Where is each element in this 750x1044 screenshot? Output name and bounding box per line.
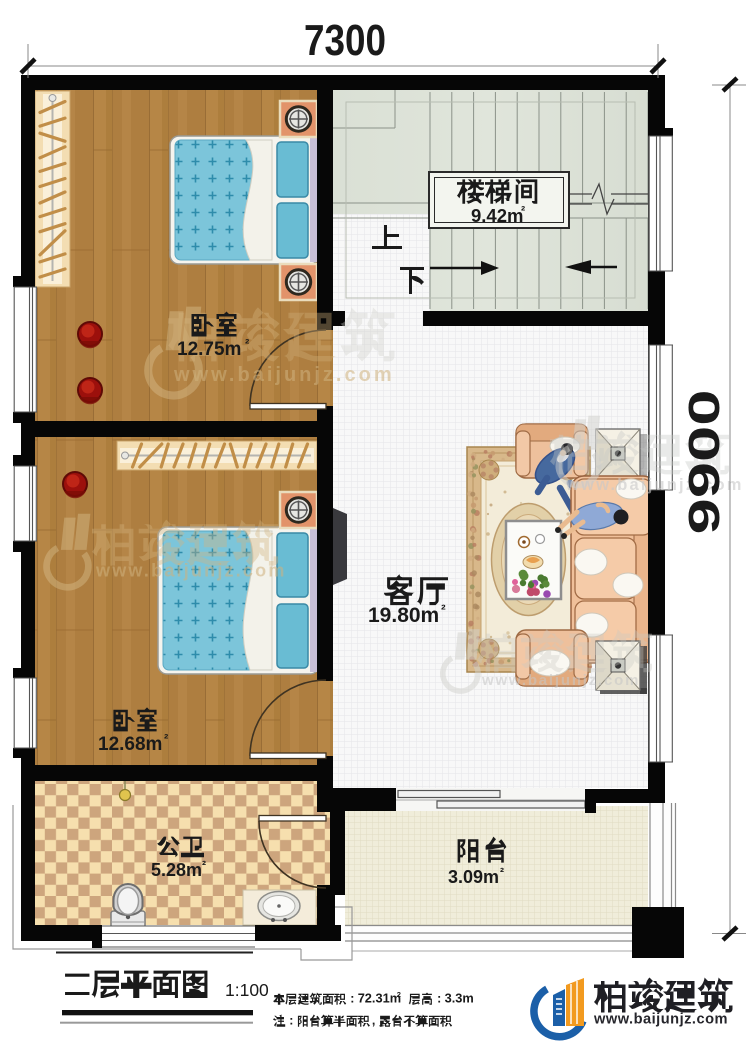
- svg-text:²: ²: [164, 731, 169, 746]
- svg-text:5.28m: 5.28m: [151, 860, 202, 880]
- svg-text:3.09m: 3.09m: [448, 867, 499, 887]
- svg-text::: :: [437, 992, 441, 1006]
- svg-text:19.80m: 19.80m: [368, 604, 439, 627]
- svg-text:9.42m: 9.42m: [471, 205, 523, 226]
- svg-text:7300: 7300: [304, 16, 386, 65]
- svg-text::: :: [350, 992, 354, 1006]
- svg-text:2: 2: [397, 990, 401, 999]
- svg-text:²: ²: [500, 865, 504, 879]
- svg-text:www.baijunjz.com: www.baijunjz.com: [481, 672, 640, 689]
- svg-text:²: ²: [245, 336, 250, 351]
- svg-text:www.baijunjz.com: www.baijunjz.com: [593, 1011, 728, 1028]
- svg-text:²: ²: [202, 858, 206, 872]
- svg-text::: :: [289, 1014, 293, 1028]
- svg-text:www.baijunjz.com: www.baijunjz.com: [95, 561, 287, 581]
- svg-text:12.75m: 12.75m: [177, 339, 241, 360]
- svg-text:12.68m: 12.68m: [98, 734, 162, 755]
- svg-text:²: ²: [441, 601, 446, 617]
- svg-text:www.baijunjz.com: www.baijunjz.com: [173, 364, 395, 386]
- svg-text:,: ,: [372, 1014, 375, 1028]
- svg-text:3.3m: 3.3m: [445, 991, 474, 1006]
- svg-text:²: ²: [521, 204, 525, 218]
- svg-text:1:100: 1:100: [225, 980, 269, 1000]
- svg-text:72.31m: 72.31m: [358, 991, 401, 1006]
- svg-text:9900: 9900: [680, 390, 729, 535]
